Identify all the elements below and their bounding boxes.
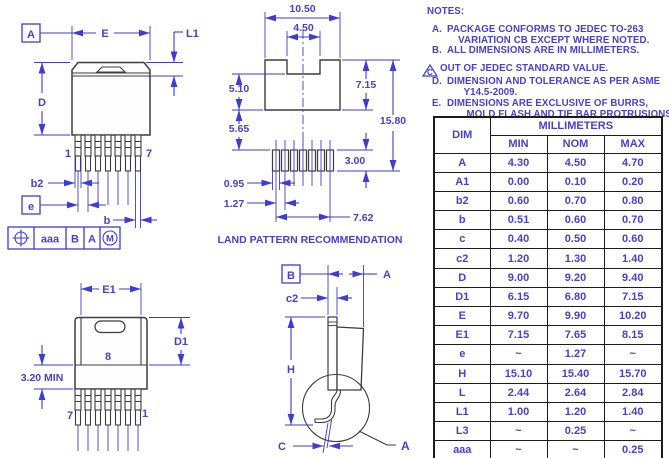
dim-standoff-label: 3.20 MIN — [21, 372, 64, 384]
land-pattern-drawing: 10.50 4.50 5.10 5.65 7.15 — [210, 0, 435, 250]
page: 1 7 A E L1 D — [0, 0, 669, 458]
dim-value-cell: 0.70 — [547, 191, 604, 210]
dim-symbol-cell: A1 — [434, 172, 490, 191]
lead — [105, 389, 111, 425]
dim-value-cell: 1.20 — [547, 402, 604, 421]
fcf-datum-b-label: B — [71, 234, 79, 246]
fcf-tolerance-label: aaa — [41, 234, 60, 246]
lead — [125, 135, 131, 171]
table-header-nom: NOM — [547, 135, 604, 153]
pin-1-label: 1 — [142, 408, 148, 420]
note-a-label: A. — [432, 25, 447, 47]
dim-value-cell: 0.10 — [547, 172, 604, 191]
dim-value-cell: ~ — [490, 422, 547, 441]
lead — [75, 389, 81, 425]
dim-symbol-cell: c2 — [434, 249, 490, 268]
dim-c-label: C — [278, 441, 286, 453]
dim-value-cell: 1.40 — [604, 249, 662, 268]
dim-L1: L1 — [146, 28, 199, 96]
dim-table-row: L3~0.25~ — [434, 422, 662, 441]
dim-symbol-cell: b2 — [434, 191, 490, 210]
dim-a-label: A — [383, 269, 391, 281]
dim-gap-label: 5.65 — [229, 123, 250, 135]
fcf-modifier-label: M — [106, 234, 114, 245]
dim-table-row: L2.442.642.84 — [434, 383, 662, 402]
notes-block: NOTES: A. PACKAGE CONFORMS TO JEDEC TO-2… — [422, 7, 669, 120]
dim-value-cell: 10.20 — [604, 307, 662, 326]
dim-symbol-cell: L1 — [434, 402, 490, 421]
dim-value-cell: 15.40 — [547, 364, 604, 383]
dim-value-cell: 1.40 — [604, 402, 662, 421]
dim-b: b — [104, 215, 157, 227]
dim-span-label: 7.62 — [353, 212, 374, 224]
lead — [135, 135, 141, 171]
dim-value-cell: 0.51 — [490, 211, 547, 230]
dim-table-row: D9.009.209.40 — [434, 268, 662, 287]
dim-value-cell: 0.25 — [547, 422, 604, 441]
package-body-side — [328, 317, 364, 390]
dim-value-cell: 2.64 — [547, 383, 604, 402]
dim-value-cell: 9.00 — [490, 268, 547, 287]
tab-pad — [265, 60, 340, 110]
notes-title: NOTES: — [427, 7, 669, 18]
dim-value-cell: 6.80 — [547, 287, 604, 306]
dim-value-cell: 4.70 — [604, 153, 662, 172]
dim-symbol-cell: b — [434, 211, 490, 230]
dim-symbol-cell: L — [434, 383, 490, 402]
dim-table-row: b0.510.600.70 — [434, 211, 662, 230]
lead — [95, 135, 101, 171]
dim-value-cell: 2.44 — [490, 383, 547, 402]
pin-1-label: 1 — [65, 148, 71, 160]
dim-value-cell: 7.15 — [604, 287, 662, 306]
dim-value-cell: 4.30 — [490, 153, 547, 172]
dim-value-cell: 0.60 — [490, 191, 547, 210]
leader-a-label: A — [401, 439, 410, 453]
dim-value-cell: 15.70 — [604, 364, 662, 383]
package-body-front — [72, 63, 150, 136]
dim-d-label: D — [38, 97, 46, 109]
dim-table-body: A4.304.504.70A10.000.100.20b20.600.700.8… — [434, 153, 662, 458]
dim-value-cell: 15.10 — [490, 364, 547, 383]
dim-overall-height-label: 15.80 — [380, 115, 406, 127]
dim-table-row: c21.201.301.40 — [434, 249, 662, 268]
dim-value-cell: 8.15 — [604, 326, 662, 345]
dim-value-cell: 7.15 — [490, 326, 547, 345]
dim-table-row: E17.157.658.15 — [434, 326, 662, 345]
detail-leader — [359, 431, 396, 445]
dim-table-row: E9.709.9010.20 — [434, 307, 662, 326]
dim-tab-lower-label: 5.10 — [229, 83, 250, 95]
dim-value-cell: 0.60 — [547, 211, 604, 230]
tab-hole — [95, 321, 125, 333]
dim-b2-label: b2 — [31, 178, 44, 190]
dim-value-cell: 1.30 — [547, 249, 604, 268]
dim-value-cell: 1.00 — [490, 402, 547, 421]
lead-side-profile — [315, 390, 341, 423]
dim-symbol-cell: D1 — [434, 287, 490, 306]
note-b-label: B. — [432, 46, 447, 57]
dim-e1-label: E1 — [102, 284, 115, 296]
dim-value-cell: 9.20 — [547, 268, 604, 287]
lead-pads — [273, 140, 334, 222]
lead — [135, 389, 141, 425]
dim-value-cell: 1.20 — [490, 249, 547, 268]
dim-symbol-cell: E1 — [434, 326, 490, 345]
dim-value-cell: 0.80 — [604, 191, 662, 210]
lead — [75, 135, 81, 171]
dim-symbol-cell: A — [434, 153, 490, 172]
dim-value-cell: 0.00 — [490, 172, 547, 191]
dim-value-cell: 0.40 — [490, 230, 547, 249]
dim-value-cell: 9.70 — [490, 307, 547, 326]
lead — [85, 389, 91, 425]
note-b: B. ALL DIMENSIONS ARE IN MILLIMETERS. — [432, 46, 669, 57]
lead — [85, 135, 91, 171]
dim-symbol-cell: H — [434, 364, 490, 383]
dim-table-row: H15.1015.4015.70 — [434, 364, 662, 383]
pin-7-label: 7 — [67, 410, 73, 422]
leads-back — [75, 389, 141, 451]
dim-table-row: L11.001.201.40 — [434, 402, 662, 421]
dim-table-row: e~1.27~ — [434, 345, 662, 364]
note-a: A. PACKAGE CONFORMS TO JEDEC TO-263 VARI… — [432, 25, 669, 47]
note-a-text: PACKAGE CONFORMS TO JEDEC TO-263 VARIATI… — [447, 25, 649, 47]
dim-symbol-cell: E — [434, 307, 490, 326]
dim-value-cell: ~ — [490, 345, 547, 364]
dim-value-cell: 0.20 — [604, 172, 662, 191]
dim-value-cell: ~ — [547, 441, 604, 458]
dimension-table: DIM MILLIMETERS MIN NOM MAX A4.304.504.7… — [433, 116, 663, 458]
lead — [115, 389, 121, 425]
dim-symbol-cell: L3 — [434, 422, 490, 441]
dim-table-row: A10.000.100.20 — [434, 172, 662, 191]
dim-pitch-label: 1.27 — [224, 198, 245, 210]
dim-symbol-cell: aaa — [434, 441, 490, 458]
dim-value-cell: 6.15 — [490, 287, 547, 306]
dim-table-row: A4.304.504.70 — [434, 153, 662, 172]
dim-table-row: b20.600.700.80 — [434, 191, 662, 210]
note-d-text: DIMENSION AND TOLERANCE AS PER ASME Y14.… — [447, 77, 660, 99]
side-view-drawing: A B A c2 H — [255, 245, 435, 458]
datum-b-label: B — [287, 270, 295, 282]
dim-symbol-cell: e — [434, 345, 490, 364]
table-header-max: MAX — [604, 135, 662, 153]
dim-value-cell: ~ — [604, 422, 662, 441]
fcf-datum-a-label: A — [88, 234, 96, 246]
dim-overall-width-label: 10.50 — [289, 3, 315, 15]
land-pattern-dimensions: 10.50 4.50 5.10 5.65 7.15 — [224, 3, 407, 224]
note-b-text: ALL DIMENSIONS ARE IN MILLIMETERS. — [447, 46, 639, 57]
feature-control-frame: aaa B A M — [8, 227, 120, 249]
position-tolerance-icon — [13, 230, 30, 247]
dim-table-row: c0.400.500.60 — [434, 230, 662, 249]
dim-value-cell: 1.27 — [547, 345, 604, 364]
dim-value-cell: ~ — [604, 345, 662, 364]
table-header-dim: DIM — [434, 117, 490, 153]
dim-e-label: E — [101, 28, 108, 40]
dim-value-cell: 2.84 — [604, 383, 662, 402]
dim-value-cell: 0.60 — [604, 230, 662, 249]
dim-l1-label: L1 — [186, 28, 199, 40]
dim-value-cell: 0.70 — [604, 211, 662, 230]
dim-tab-height-label: 7.15 — [356, 79, 377, 91]
dim-h-label: H — [287, 364, 295, 376]
pin-7-label: 7 — [146, 148, 152, 160]
datum-a-label: A — [27, 29, 35, 41]
dim-E: A E — [22, 24, 150, 60]
dim-table-row: aaa~~0.25 — [434, 441, 662, 458]
note-d-label: D. — [432, 77, 447, 99]
back-view-drawing: 8 7 1 — [0, 255, 225, 458]
dim-symbol-cell: D — [434, 268, 490, 287]
lead — [115, 135, 121, 171]
lead — [125, 389, 131, 425]
tab-pad-label: 8 — [105, 351, 111, 363]
dim-value-cell: 9.90 — [547, 307, 604, 326]
table-header-min: MIN — [490, 135, 547, 153]
dim-pad-width-label: 0.95 — [224, 178, 245, 190]
dim-notch-width-label: 4.50 — [293, 22, 314, 34]
datum-e-label: e — [28, 201, 34, 213]
dim-symbol-cell: c — [434, 230, 490, 249]
lead — [95, 389, 101, 425]
dim-c2-label: c2 — [286, 293, 298, 305]
dim-d1-label: D1 — [174, 336, 188, 348]
dim-D: D — [34, 63, 70, 136]
dim-value-cell: 9.40 — [604, 268, 662, 287]
dim-b-label: b — [104, 215, 111, 227]
dim-value-cell: 0.50 — [547, 230, 604, 249]
dim-value-cell: 4.50 — [547, 153, 604, 172]
dim-table-row: D16.156.807.15 — [434, 287, 662, 306]
dim-pad-height-label: 3.00 — [345, 155, 366, 167]
front-view-drawing: 1 7 A E L1 D — [0, 0, 225, 258]
dim-b2: b2 — [31, 178, 99, 190]
note-d: D. DIMENSION AND TOLERANCE AS PER ASME Y… — [432, 77, 669, 99]
dim-value-cell: 0.25 — [604, 441, 662, 458]
lead — [105, 135, 111, 171]
dim-value-cell: ~ — [490, 441, 547, 458]
table-header-units: MILLIMETERS — [490, 117, 662, 135]
dim-e-pitch: e — [22, 196, 106, 214]
dim-value-cell: 7.65 — [547, 326, 604, 345]
